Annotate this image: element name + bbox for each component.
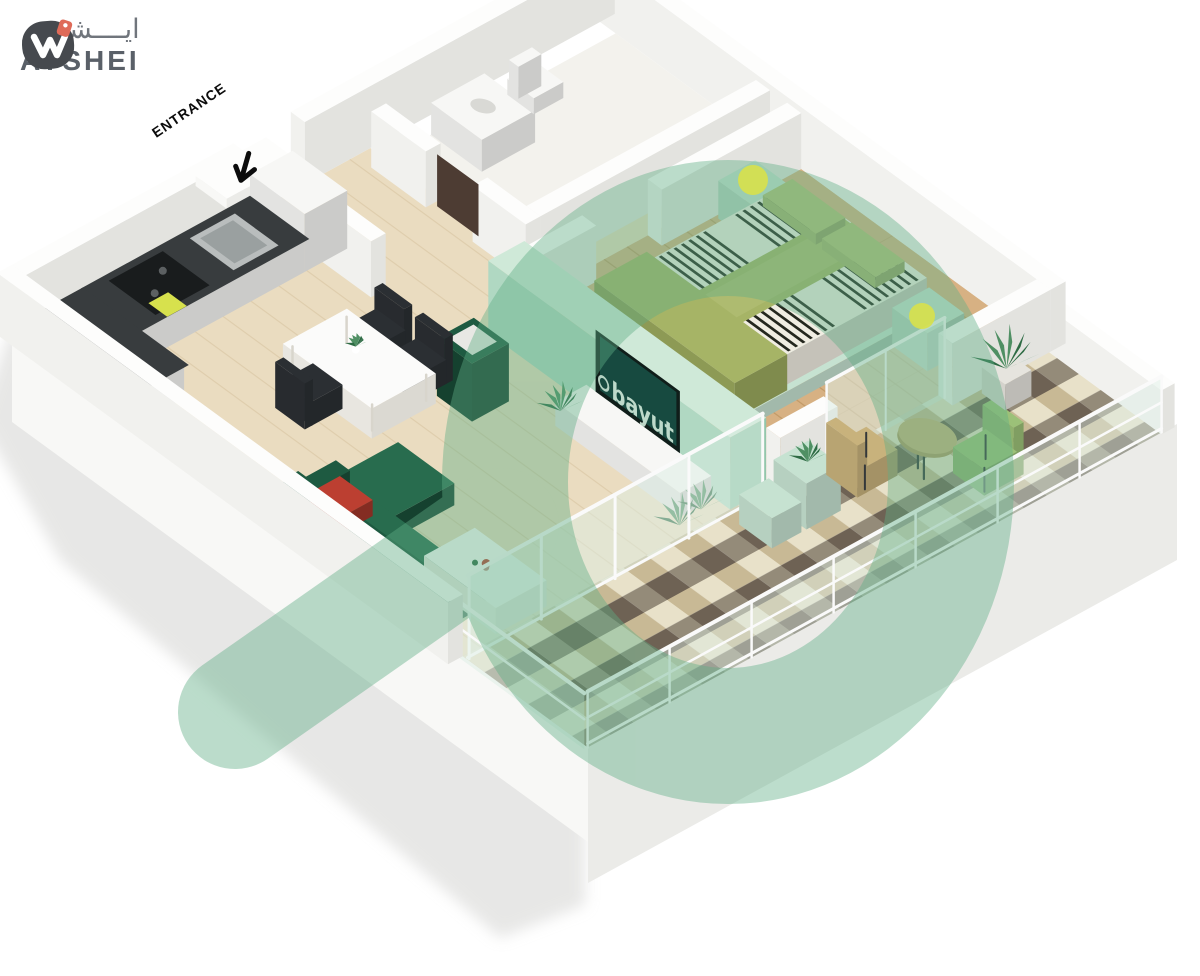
cooktop-burner <box>159 267 167 275</box>
ayshei-logo-icon <box>20 16 78 74</box>
brand-logo: ايــــشي AYSHEI <box>20 16 140 76</box>
balcony-parapet <box>1162 383 1175 434</box>
toilet-tank <box>509 60 518 99</box>
table-vase <box>352 346 360 354</box>
lamp-glow-left <box>738 165 768 195</box>
floorplan-page: bayut ايــــشي AYSHEI ENTRANCE <box>0 0 1200 976</box>
lamp-glow-right <box>909 303 935 329</box>
dining-chair-back <box>305 379 313 430</box>
wall-back-right <box>1051 281 1066 351</box>
floorplan-canvas: bayut <box>0 0 1200 976</box>
cooktop-burner <box>151 289 159 297</box>
